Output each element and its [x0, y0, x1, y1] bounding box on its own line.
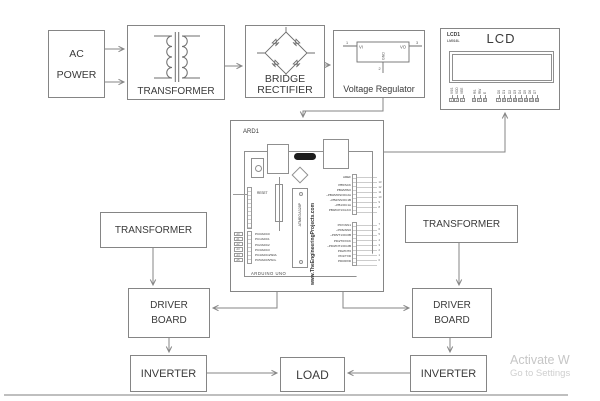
digital-pins-upper: PB5/SCKPB4/MISO~PB3/MOSI/OC2A~PB2/SS/OC1…: [317, 183, 351, 213]
lcd-pin-number: 14: [535, 98, 540, 103]
pin-header-strip-left-upper: [247, 187, 252, 229]
bridge-line2: RECTIFIER: [257, 85, 312, 96]
transformer-symbol-icon: [128, 28, 226, 86]
mcu-label: ATMEGA328P: [298, 203, 302, 226]
analog-header: A1: [234, 237, 243, 241]
lcd-pin-label: D7: [533, 84, 538, 94]
block-inverter-right: INVERTER: [410, 355, 487, 392]
regulator-part-icon: [275, 184, 283, 222]
ac-power-line1: AC: [69, 48, 84, 60]
analog-header: A4: [234, 253, 243, 257]
inverter-right-label: INVERTER: [421, 368, 476, 380]
lcd-pin-number: 12: [524, 98, 529, 103]
digital-headers-upper: 1312111098: [379, 180, 382, 210]
block-driver-board-right: DRIVER BOARD: [412, 288, 492, 338]
block-driver-board-left: DRIVER BOARD: [128, 288, 210, 338]
lcd-pin-number: 2: [454, 98, 459, 103]
power-jack-icon: [251, 158, 264, 178]
lcd-pin-numbers: 1234567891011121314: [449, 94, 540, 102]
pin-header-strip-left-lower: [247, 231, 252, 264]
transformer-right-label: TRANSFORMER: [423, 219, 500, 230]
transformer-left-label: TRANSFORMER: [115, 225, 192, 236]
analog-header: A0: [234, 232, 243, 236]
pin-label: PC5/ADC5/SCL: [255, 258, 277, 263]
pin-number: 8: [379, 205, 382, 210]
digital-headers-lower: 76543210: [379, 222, 380, 264]
pin-header-strip-right-lower: [352, 222, 357, 266]
block-arduino: ARD1 ATMEGA328P www.TheEngineeringProjec…: [230, 120, 384, 292]
lcd-pin-label: D2: [508, 84, 513, 94]
wire-regulator-to-arduino: [303, 98, 383, 117]
block-lcd: LCD1 LM016L LCD VSSVDDVEERSRWED0D1D2D3D4…: [440, 28, 560, 110]
analog-header: A5: [234, 258, 243, 262]
lcd-pin-number: 10: [513, 98, 518, 103]
lcd-pin-label: VEE: [460, 84, 465, 94]
driver-right-line1: DRIVER: [433, 298, 471, 313]
bridge-rectifier-symbol-icon: [246, 26, 326, 76]
usb-b-port-icon: [323, 139, 349, 169]
pin-header-strip-right-upper: [352, 174, 357, 215]
block-load: LOAD: [280, 357, 345, 392]
block-transformer-right: TRANSFORMER: [405, 205, 518, 243]
lcd-pin-number: 13: [529, 98, 534, 103]
aref-pin-label: AREF: [317, 175, 351, 179]
block-inverter-left: INVERTER: [130, 355, 207, 392]
lcd-pin-number: 9: [507, 98, 512, 103]
block-transformer-top: TRANSFORMER: [127, 25, 225, 100]
voltage-regulator-label: Voltage Regulator: [343, 84, 415, 94]
digital-pins-lower: PD7/AIN1~PD6/AIN0~PD5/T1/OC0BPD4/T0/XCK~…: [317, 223, 351, 265]
lcd-pin-number: 7: [496, 98, 501, 103]
voltage-regulator-symbol-icon: VI VO GND 1 3 2: [334, 31, 426, 79]
lcd-pin-number: 5: [477, 98, 482, 103]
analog-pins: PC0/ADC0PC1/ADC1PC2/ADC2PC3/ADC3PC4/ADC4…: [255, 232, 277, 264]
lcd-pin-label: E: [483, 84, 488, 94]
pin-label: PD0/RXD: [317, 259, 351, 264]
block-bridge-rectifier: BRIDGE RECTIFIER: [245, 25, 325, 98]
analog-header: A3: [234, 247, 243, 251]
usb-connector-icon: [267, 144, 289, 174]
driver-left-line2: BOARD: [151, 313, 187, 328]
lcd-pin-labels: VSSVDDVEERSRWED0D1D2D3D4D5D6D7: [450, 84, 539, 94]
lcd-pin-number: 11: [518, 98, 523, 103]
analog-pin-headers: A0A1A2A3A4A5: [234, 232, 243, 264]
mcu-chip-icon: ATMEGA328P: [292, 188, 308, 268]
vreg-vo-label: VO: [400, 45, 407, 50]
vreg-pin1: 1: [346, 41, 348, 45]
inverter-left-label: INVERTER: [141, 368, 196, 380]
pin-stubs-right-lower: [357, 225, 377, 268]
pin-stubs-right-upper: [357, 177, 377, 217]
wire-arduino-to-driver-left: [213, 292, 277, 308]
pin-label: PB0/ICP1/CLKO: [317, 208, 351, 213]
lcd-pin-label: RS: [473, 84, 478, 94]
reset-stub: [233, 194, 247, 195]
vreg-vi-label: VI: [359, 45, 363, 50]
wire-arduino-to-driver-right: [343, 292, 409, 308]
lcd-pin-number: 8: [502, 98, 507, 103]
lcd-pin-number: 1: [449, 98, 454, 103]
website-text: www.TheEngineeringProjects.com: [310, 157, 316, 285]
driver-right-line2: BOARD: [434, 313, 470, 328]
block-transformer-left: TRANSFORMER: [100, 212, 207, 248]
block-voltage-regulator: VI VO GND 1 3 2 Voltage Regulator: [333, 30, 425, 98]
lcd-screen-outer: [449, 51, 554, 83]
analog-header: A2: [234, 242, 243, 246]
diagram-canvas: AC POWER TRANSFORMER BRIDGE RECTIFI: [0, 0, 600, 401]
lcd-pin-number: 6: [483, 98, 488, 103]
vreg-gnd-label: GND: [382, 52, 386, 60]
block-ac-power: AC POWER: [48, 30, 105, 98]
vreg-pin3: 3: [416, 41, 418, 45]
arduino-ref: ARD1: [243, 129, 259, 135]
transformer-top-label: TRANSFORMER: [137, 86, 214, 97]
ac-power-line2: POWER: [57, 69, 97, 81]
lcd-pin-number: 3: [460, 98, 465, 103]
watermark-line1: Activate W: [510, 353, 570, 367]
lcd-pin-number: 4: [472, 98, 477, 103]
lcd-pin-label: D1: [502, 84, 507, 94]
activation-watermark: Activate W Go to Settings: [510, 353, 570, 379]
lcd-screen-inner: [452, 54, 552, 81]
driver-left-line1: DRIVER: [150, 298, 188, 313]
lcd-title: LCD: [441, 31, 561, 46]
pin-number: 5: [379, 232, 380, 237]
watermark-line2: Go to Settings: [510, 368, 570, 379]
wire-arduino-to-lcd: [384, 113, 505, 152]
arduino-board-name: ARDUINO UNO: [251, 271, 286, 276]
vreg-pin2: 2: [379, 67, 381, 71]
reset-pin-label: RESET: [257, 191, 268, 195]
load-label: LOAD: [296, 368, 329, 382]
pin-number: 0: [379, 258, 380, 263]
